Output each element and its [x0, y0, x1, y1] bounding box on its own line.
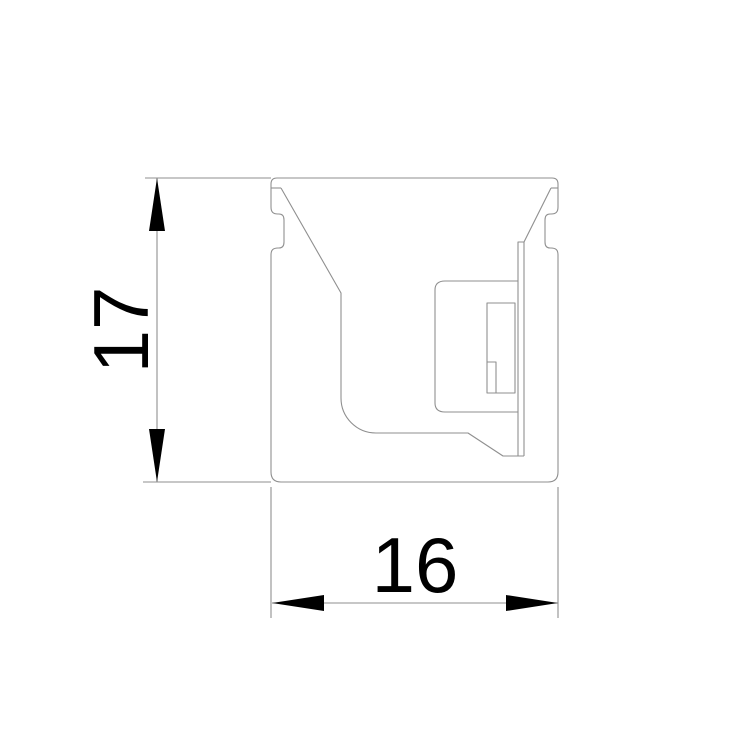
- drawing-page: 17 16: [0, 0, 750, 750]
- profile-cross-section: [271, 178, 558, 482]
- wire-slot: [487, 362, 496, 393]
- pcb-plate: [518, 242, 524, 456]
- height-dimension-label: 17: [77, 287, 165, 374]
- width-dimension-label: 16: [372, 521, 459, 609]
- height-dimension: 17: [77, 178, 165, 482]
- led-module-housing: [435, 281, 518, 412]
- technical-drawing-canvas: 17 16: [0, 0, 750, 750]
- height-arrow-down: [149, 429, 165, 482]
- width-arrow-right: [506, 595, 558, 611]
- dimension-annotations: 17 16: [77, 178, 558, 618]
- width-dimension: 16: [272, 521, 558, 611]
- width-arrow-left: [272, 595, 324, 611]
- height-arrow-up: [149, 178, 165, 231]
- led-strip-recess: [487, 303, 515, 393]
